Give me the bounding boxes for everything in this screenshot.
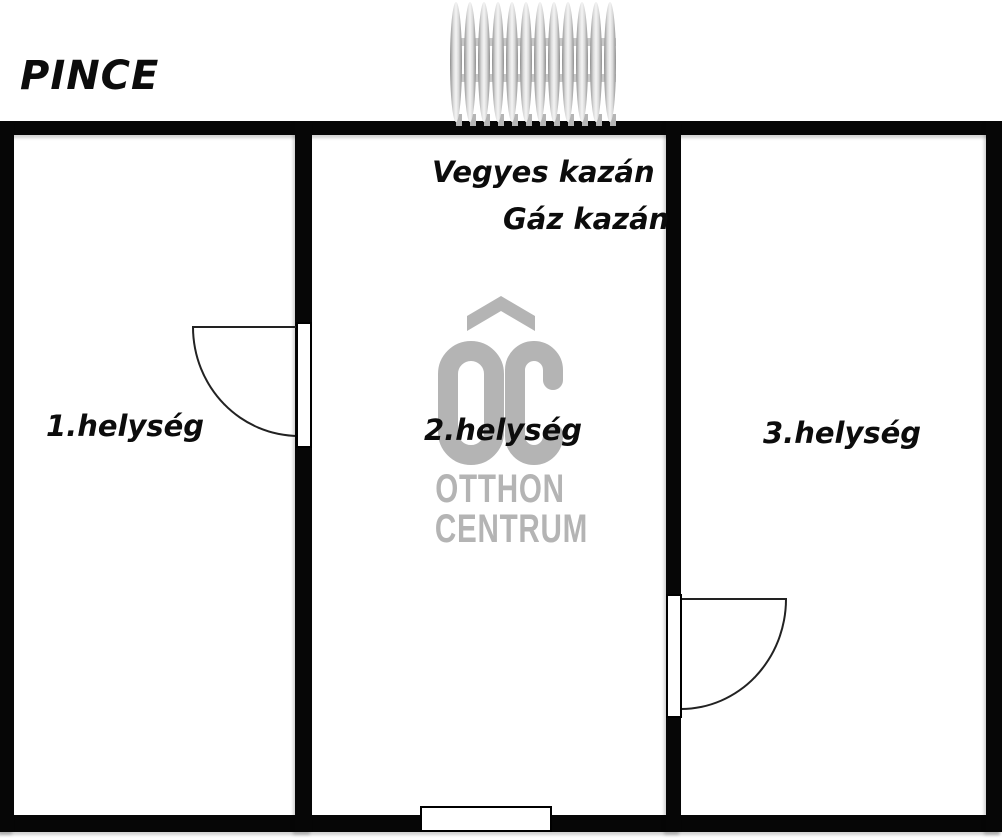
radiator-fins <box>450 2 616 122</box>
door-leaf-room3 <box>681 598 787 600</box>
room-label-2: 2.helység <box>424 413 582 447</box>
watermark-line1: OTTHON <box>435 467 565 512</box>
oc-logo-icon <box>420 285 610 480</box>
radiator-fin <box>478 2 490 122</box>
room-label-3: 3.helység <box>763 416 921 450</box>
radiator-fin <box>562 2 574 122</box>
radiator-fin <box>520 2 532 122</box>
radiator-fin <box>492 2 504 122</box>
radiator-fin <box>576 2 588 122</box>
floor-title: PINCE <box>20 53 159 99</box>
wall-right <box>986 121 1002 832</box>
radiator-fin <box>604 2 616 122</box>
radiator-fin <box>534 2 546 122</box>
radiator-fin <box>450 2 462 122</box>
door-swing-arc-room3 <box>681 599 787 710</box>
wall-left <box>0 121 14 832</box>
door-leaf-room1 <box>192 326 300 328</box>
watermark-line2: CENTRUM <box>435 507 565 552</box>
bottom-wall-opening <box>420 806 552 832</box>
boiler-label-vegyes: Vegyes kazán <box>432 155 655 189</box>
radiator-fin <box>548 2 560 122</box>
door-panel-room1 <box>296 322 312 448</box>
roof-chevron-icon <box>467 296 535 331</box>
wall-room1-room2 <box>295 121 312 832</box>
door-swing-arc-room1 <box>192 327 299 437</box>
radiator-icon <box>450 2 618 128</box>
radiator-fin <box>506 2 518 122</box>
door-panel-room3 <box>666 594 682 718</box>
room-label-1: 1.helység <box>46 409 204 443</box>
floorplan-canvas: PINCE OTTHON CENTRUM <box>0 0 1002 840</box>
radiator-fin <box>590 2 602 122</box>
boiler-label-gaz: Gáz kazán <box>503 202 669 236</box>
radiator-fin <box>464 2 476 122</box>
